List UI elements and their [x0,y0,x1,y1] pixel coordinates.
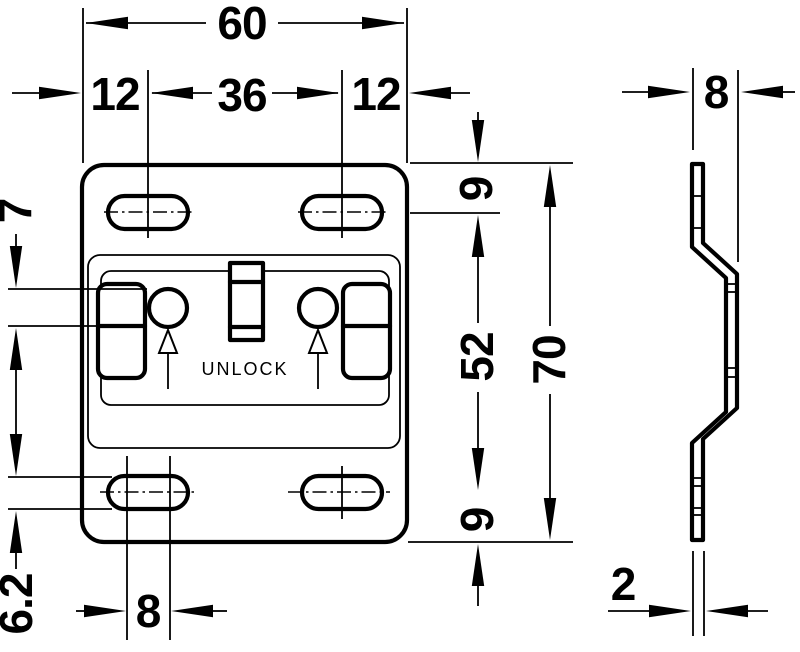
dim-9b-arrow-up-icon [472,544,484,586]
dim-center-distance-label: 36 [217,72,266,118]
dim-slot-span-label: 52 [454,332,500,381]
dim-total-width-label: 60 [217,0,266,46]
technical-drawing: 60 12 36 12 7 6.2 8 9 52 9 70 8 2 UNLOCK [0,0,800,652]
front-view [82,165,407,542]
button-right-outline [343,284,390,378]
dim-7-arrow-down-icon [10,246,22,288]
button-right [343,284,390,378]
dim-bottom-margin-label: 9 [454,508,500,533]
dim-thickness-label: 2 [611,561,636,607]
dim-70-arrow-down-icon [544,498,556,540]
dim-8s-arrow-right-icon [741,86,783,98]
dim-total-height-label: 70 [526,335,572,384]
dim-2-arrow-right-icon [706,605,748,617]
hole-right [299,289,337,327]
button-left [98,284,145,378]
hole-left [149,289,187,327]
dim-60-arrow-right-icon [362,17,404,29]
dim-52-arrow-down-icon [472,448,484,490]
dim-left-offset-label: 12 [90,71,139,117]
dim-8s-arrow-left-icon [648,86,690,98]
dim-7-arrow-up-icon [10,328,22,370]
dim-36-arrow-right-icon [297,87,339,99]
unlock-label: UNLOCK [201,360,288,378]
dim-8b-arrow-right-icon [171,605,213,617]
dim-2-arrow-left-icon [649,605,691,617]
dim-9t-arrow-down-icon [472,120,484,162]
dim-right-offset-label: 12 [351,71,400,117]
dim-36-arrow-left-icon [151,87,193,99]
latch [230,263,263,340]
dim-52-arrow-up-icon [472,215,484,257]
dim-depth-label: 8 [704,69,729,115]
side-profile-outline [692,164,737,540]
dim-hole-diameter-label: 7 [0,199,38,224]
dim-12r-arrow-icon [409,87,451,99]
dim-top-margin-label: 9 [453,177,499,202]
dim-slot-width-label: 6.2 [0,574,39,635]
dim-slot-length-label: 8 [136,588,161,634]
button-left-outline [98,284,145,378]
dim-8b-arrow-left-icon [84,605,126,617]
dim-60-arrow-left-icon [86,17,128,29]
dim-62-arrow-up-icon [10,511,22,553]
dim-70-arrow-up-icon [544,165,556,207]
dim-12l-arrow-icon [39,87,81,99]
side-view [608,68,795,636]
dim-62-arrow-down-icon [10,434,22,476]
